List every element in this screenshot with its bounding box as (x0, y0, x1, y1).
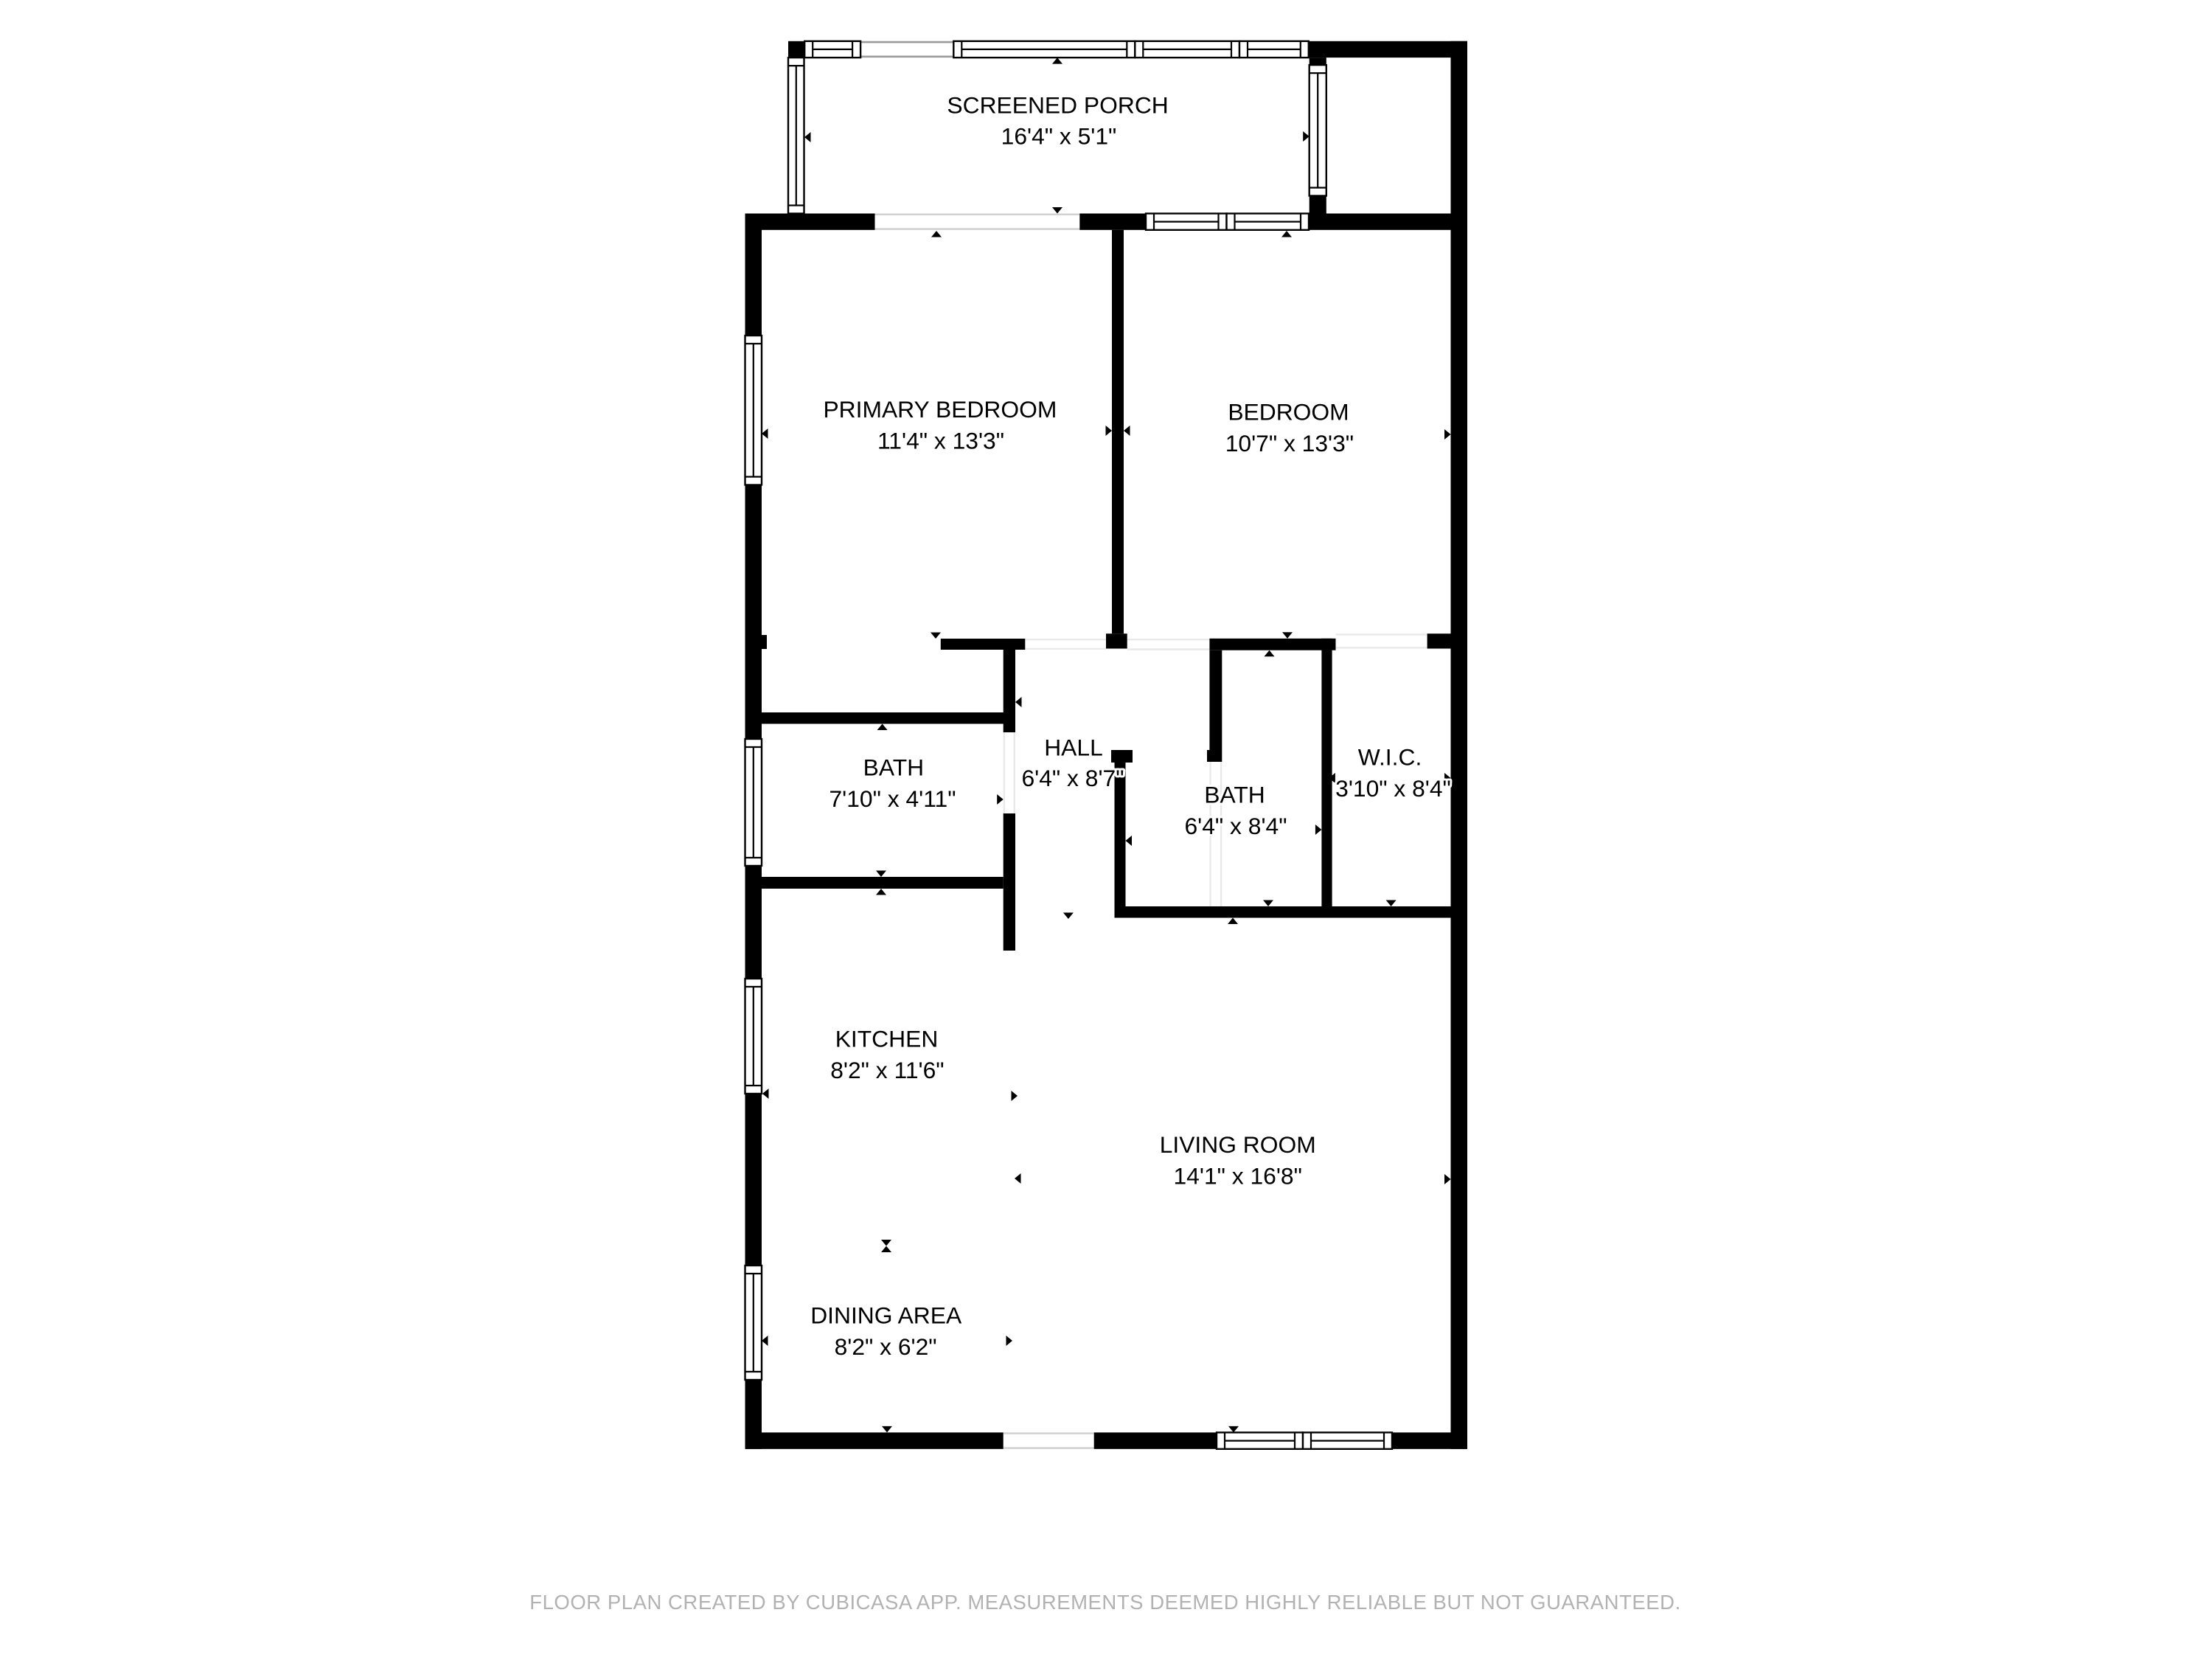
svg-text:3'10" x 8'4": 3'10" x 8'4" (1335, 775, 1451, 802)
svg-text:8'2" x 11'6": 8'2" x 11'6" (830, 1057, 944, 1083)
svg-text:14'1" x 16'8": 14'1" x 16'8" (1174, 1163, 1302, 1190)
svg-text:PRIMARY BEDROOM: PRIMARY BEDROOM (823, 396, 1057, 423)
svg-text:BATH: BATH (1204, 782, 1265, 808)
svg-text:7'10" x 4'11": 7'10" x 4'11" (829, 785, 956, 812)
svg-text:KITCHEN: KITCHEN (835, 1026, 939, 1052)
svg-text:11'4" x 13'3": 11'4" x 13'3" (877, 428, 1004, 454)
svg-text:6'4" x 8'7": 6'4" x 8'7" (1021, 765, 1124, 791)
svg-text:6'4" x 8'4": 6'4" x 8'4" (1184, 813, 1287, 839)
svg-text:8'2" x 6'2": 8'2" x 6'2" (835, 1333, 937, 1360)
svg-text:10'7" x 13'3": 10'7" x 13'3" (1225, 430, 1354, 456)
svg-text:SCREENED PORCH: SCREENED PORCH (947, 92, 1168, 119)
svg-text:W.I.C.: W.I.C. (1358, 744, 1422, 771)
svg-text:DINING AREA: DINING AREA (810, 1302, 962, 1329)
svg-text:16'4" x 5'1": 16'4" x 5'1" (1001, 123, 1117, 150)
svg-text:FLOOR PLAN CREATED BY CUBICASA: FLOOR PLAN CREATED BY CUBICASA APP. MEAS… (529, 1591, 1681, 1614)
svg-text:BEDROOM: BEDROOM (1228, 399, 1349, 426)
svg-text:LIVING ROOM: LIVING ROOM (1160, 1131, 1316, 1158)
svg-text:HALL: HALL (1044, 735, 1103, 761)
svg-text:BATH: BATH (863, 754, 924, 781)
